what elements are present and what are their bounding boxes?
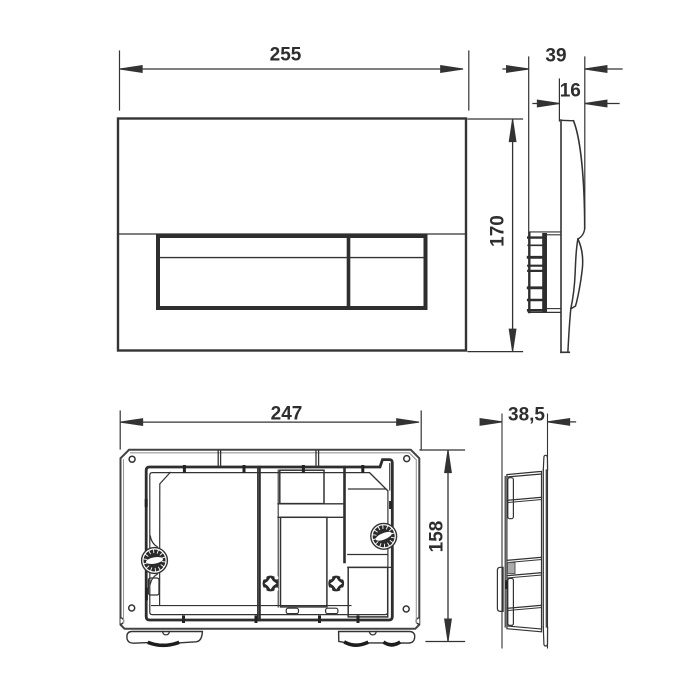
svg-text:16: 16	[560, 81, 581, 102]
svg-text:38,5: 38,5	[508, 404, 545, 425]
svg-text:158: 158	[427, 521, 448, 553]
svg-text:247: 247	[271, 403, 303, 424]
svg-text:39: 39	[545, 46, 566, 67]
svg-text:255: 255	[270, 45, 302, 66]
svg-text:170: 170	[488, 215, 509, 247]
